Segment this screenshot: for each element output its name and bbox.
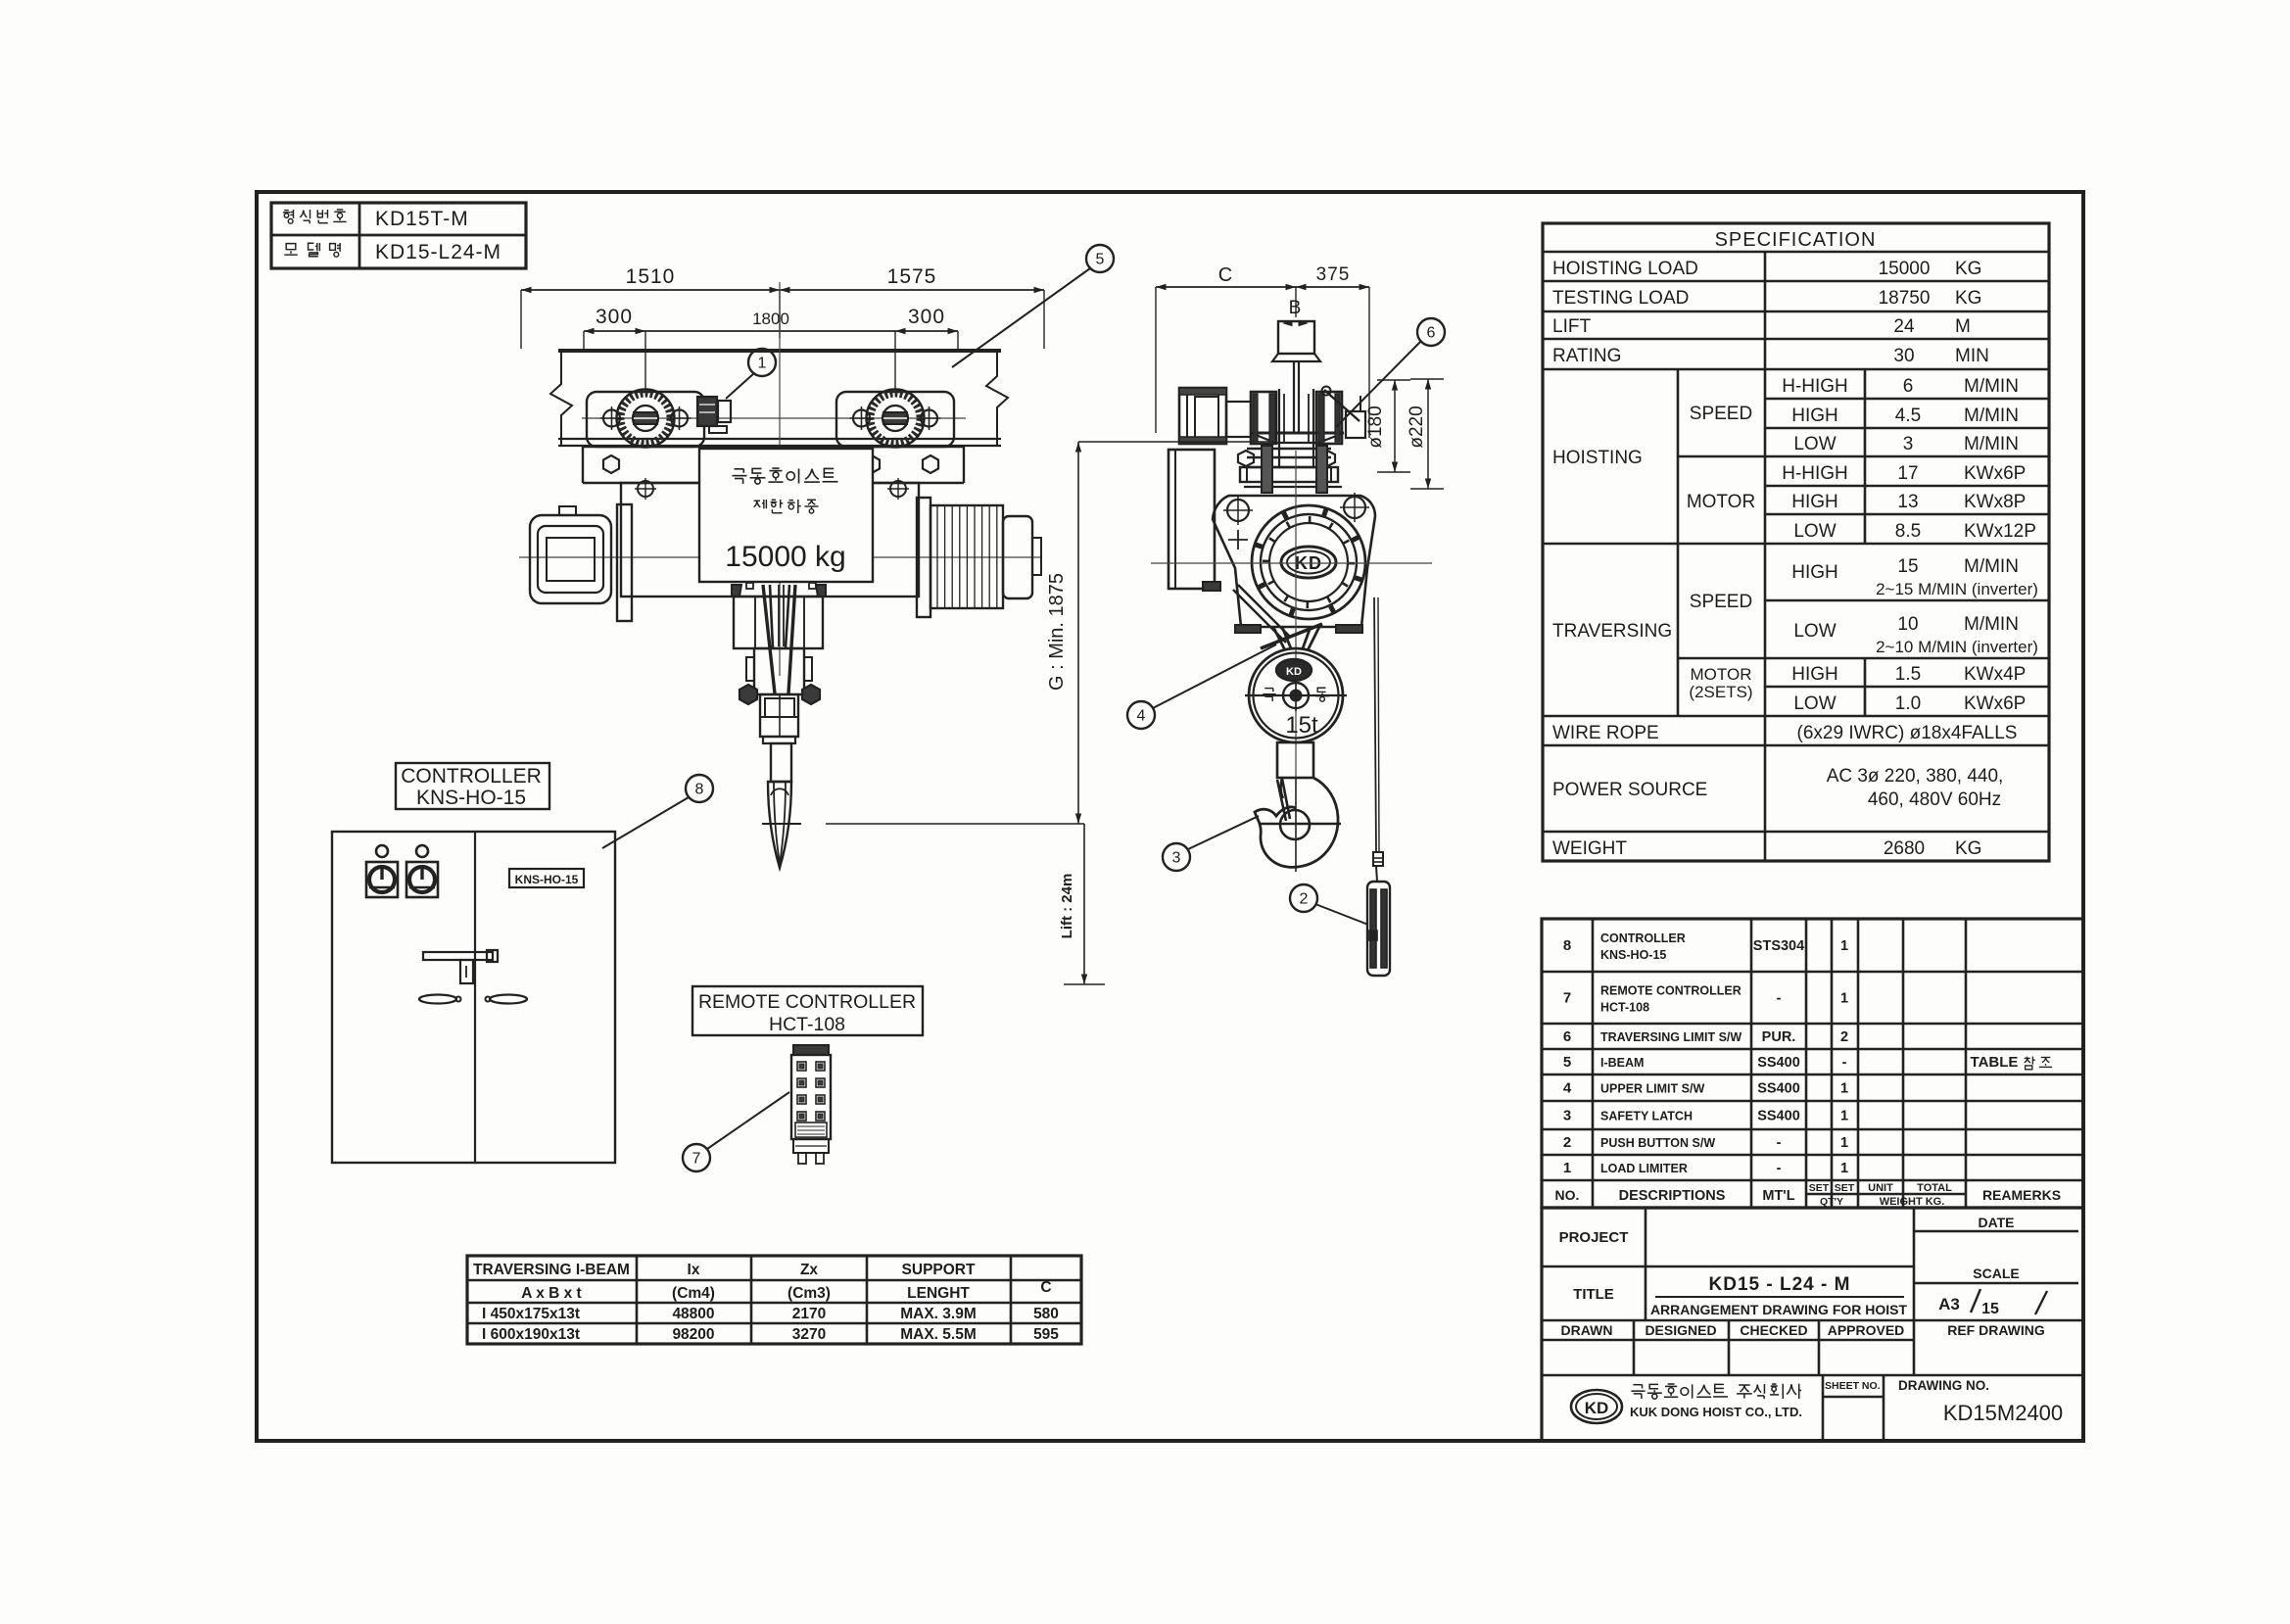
svg-text:TABLE: TABLE: [1971, 1054, 2019, 1071]
svg-text:MT'L: MT'L: [1762, 1188, 1794, 1204]
svg-text:TRAVERSING: TRAVERSING: [1552, 621, 1672, 642]
svg-text:30: 30: [1893, 346, 1914, 366]
svg-text:300: 300: [908, 306, 945, 328]
svg-text:1510: 1510: [626, 265, 676, 288]
svg-text:3: 3: [1563, 1108, 1571, 1124]
svg-text:TRAVERSING I-BEAM: TRAVERSING I-BEAM: [473, 1262, 630, 1278]
svg-text:1: 1: [1840, 1109, 1848, 1124]
svg-text:KWx6P: KWx6P: [1964, 693, 2026, 714]
svg-text:HIGH: HIGH: [1791, 664, 1838, 685]
svg-text:KWx12P: KWx12P: [1964, 521, 2036, 542]
svg-text:KD15T-M: KD15T-M: [375, 208, 469, 230]
svg-text:I 450x175x13t: I 450x175x13t: [482, 1306, 580, 1322]
svg-text:7: 7: [1563, 990, 1571, 1007]
svg-text:SPEED: SPEED: [1690, 404, 1752, 424]
svg-text:LOW: LOW: [1793, 521, 1836, 542]
svg-text:AC 3ø 220, 380, 440,: AC 3ø 220, 380, 440,: [1827, 766, 2004, 787]
svg-text:SUPPORT: SUPPORT: [902, 1262, 976, 1278]
svg-text:PUSH BUTTON S/W: PUSH BUTTON S/W: [1600, 1136, 1715, 1150]
svg-text:A3: A3: [1938, 1295, 1960, 1314]
svg-text:A x B x t: A x B x t: [521, 1285, 581, 1302]
svg-text:1: 1: [1840, 1081, 1848, 1097]
svg-text:APPROVED: APPROVED: [1828, 1322, 1905, 1338]
svg-text:1800: 1800: [752, 310, 789, 328]
svg-text:1: 1: [1840, 938, 1848, 954]
svg-text:M/MIN: M/MIN: [1964, 376, 2019, 397]
svg-text:6: 6: [1563, 1028, 1571, 1045]
svg-text:580: 580: [1033, 1306, 1059, 1322]
svg-text:-: -: [1777, 1135, 1782, 1151]
svg-text:375: 375: [1316, 264, 1351, 285]
svg-text:2~10 M/MIN (inverter): 2~10 M/MIN (inverter): [1876, 638, 2038, 656]
svg-text:4: 4: [1137, 708, 1146, 725]
svg-text:1: 1: [1840, 991, 1848, 1007]
svg-text:REF DRAWING: REF DRAWING: [1947, 1322, 2045, 1338]
svg-text:10: 10: [1897, 614, 1918, 635]
svg-text:6: 6: [1903, 376, 1914, 397]
svg-text:LOW: LOW: [1793, 693, 1836, 714]
svg-text:PUR.: PUR.: [1762, 1029, 1796, 1045]
svg-text:I-BEAM: I-BEAM: [1600, 1056, 1644, 1070]
svg-text:MAX. 5.5M: MAX. 5.5M: [900, 1326, 977, 1343]
svg-text:SET: SET: [1809, 1182, 1830, 1194]
svg-text:WIRE ROPE: WIRE ROPE: [1552, 723, 1659, 743]
svg-text:1.0: 1.0: [1895, 693, 1921, 714]
svg-text:PROJECT: PROJECT: [1559, 1229, 1629, 1246]
svg-text:15t: 15t: [1285, 712, 1318, 739]
svg-text:98200: 98200: [672, 1326, 714, 1343]
svg-text:HOISTING: HOISTING: [1552, 448, 1643, 468]
svg-text:SPECIFICATION: SPECIFICATION: [1715, 229, 1877, 251]
svg-text:Lift : 24m: Lift : 24m: [1059, 874, 1075, 939]
svg-text:SS400: SS400: [1757, 1055, 1800, 1071]
svg-text:MAX. 3.9M: MAX. 3.9M: [900, 1306, 977, 1322]
svg-text:DESIGNED: DESIGNED: [1645, 1322, 1716, 1338]
svg-text:Ix: Ix: [688, 1262, 700, 1278]
svg-text:2680: 2680: [1884, 838, 1925, 859]
svg-text:I 600x190x13t: I 600x190x13t: [482, 1326, 580, 1343]
svg-text:MOTOR: MOTOR: [1691, 665, 1752, 684]
svg-text:SS400: SS400: [1757, 1109, 1800, 1124]
svg-text:KG: KG: [1955, 838, 1981, 859]
svg-text:LENGHT: LENGHT: [907, 1285, 970, 1302]
svg-text:HIGH: HIGH: [1791, 406, 1838, 426]
svg-text:-: -: [1842, 1055, 1847, 1071]
svg-text:KWx4P: KWx4P: [1964, 664, 2026, 685]
svg-text:8: 8: [695, 782, 704, 798]
svg-text:SS400: SS400: [1757, 1081, 1800, 1097]
svg-text:M/MIN: M/MIN: [1964, 614, 2019, 635]
svg-text:WEIGHT: WEIGHT: [1552, 838, 1627, 859]
svg-text:LOW: LOW: [1793, 434, 1836, 454]
svg-text:(2SETS): (2SETS): [1689, 683, 1752, 701]
svg-text:UNIT: UNIT: [1868, 1182, 1893, 1194]
svg-text:M/MIN: M/MIN: [1964, 406, 2019, 426]
svg-text:3: 3: [1172, 850, 1181, 867]
svg-text:2~15 M/MIN (inverter): 2~15 M/MIN (inverter): [1876, 580, 2038, 598]
svg-text:DRAWING NO.: DRAWING NO.: [1898, 1378, 1989, 1393]
svg-text:KNS-HO-15: KNS-HO-15: [1600, 948, 1666, 962]
svg-text:KD15-L24-M: KD15-L24-M: [375, 241, 501, 263]
svg-text:13: 13: [1897, 492, 1918, 512]
svg-text:REMOTE CONTROLLER: REMOTE CONTROLLER: [1600, 984, 1741, 998]
svg-text:H-HIGH: H-HIGH: [1782, 463, 1848, 484]
svg-text:HCT-108: HCT-108: [1600, 1001, 1649, 1015]
svg-text:2170: 2170: [792, 1306, 826, 1322]
svg-text:1: 1: [1563, 1160, 1571, 1176]
svg-text:595: 595: [1033, 1326, 1059, 1343]
svg-text:SAFETY LATCH: SAFETY LATCH: [1600, 1110, 1693, 1123]
svg-text:Zx: Zx: [800, 1262, 818, 1278]
svg-text:KD: KD: [1286, 666, 1302, 678]
svg-text:SET: SET: [1835, 1182, 1855, 1194]
svg-text:8: 8: [1563, 937, 1571, 954]
svg-text:1.5: 1.5: [1895, 664, 1921, 685]
svg-text:15: 15: [1897, 556, 1918, 577]
svg-text:H-HIGH: H-HIGH: [1782, 376, 1848, 397]
svg-text:KNS-HO-15: KNS-HO-15: [416, 787, 526, 809]
svg-text:TITLE: TITLE: [1573, 1286, 1614, 1303]
svg-text:ARRANGEMENT DRAWING FOR HOIST: ARRANGEMENT DRAWING FOR HOIST: [1650, 1302, 1908, 1317]
svg-text:TESTING LOAD: TESTING LOAD: [1552, 288, 1689, 309]
svg-text:TRAVERSING LIMIT S/W: TRAVERSING LIMIT S/W: [1600, 1030, 1741, 1044]
svg-text:ø180: ø180: [1365, 406, 1386, 448]
svg-text:MOTOR: MOTOR: [1687, 492, 1755, 512]
svg-text:-: -: [1777, 1161, 1782, 1176]
svg-text:(Cm3): (Cm3): [787, 1285, 831, 1302]
svg-text:C: C: [1218, 264, 1232, 286]
svg-text:REAMERKS: REAMERKS: [1982, 1187, 2061, 1203]
svg-text:KD15 - L24 - M: KD15 - L24 - M: [1709, 1274, 1851, 1295]
svg-text:HIGH: HIGH: [1791, 492, 1838, 512]
svg-text:CONTROLLER: CONTROLLER: [1600, 931, 1686, 945]
svg-text:460, 480V 60Hz: 460, 480V 60Hz: [1868, 789, 2001, 810]
svg-text:QT'Y: QT'Y: [1820, 1196, 1843, 1208]
svg-text:G : Min. 1875: G : Min. 1875: [1046, 573, 1068, 691]
svg-text:5: 5: [1096, 252, 1105, 268]
svg-text:(Cm4): (Cm4): [672, 1285, 715, 1302]
svg-text:ø220: ø220: [1407, 406, 1427, 448]
svg-text:M: M: [1955, 316, 1971, 337]
svg-text:48800: 48800: [672, 1306, 714, 1322]
svg-text:CHECKED: CHECKED: [1740, 1322, 1807, 1338]
svg-text:SPEED: SPEED: [1690, 592, 1752, 612]
svg-text:POWER SOURCE: POWER SOURCE: [1552, 780, 1707, 800]
svg-text:1: 1: [1840, 1135, 1848, 1151]
svg-text:LIFT: LIFT: [1552, 316, 1591, 337]
svg-text:2: 2: [1563, 1134, 1571, 1151]
svg-text:-: -: [1777, 991, 1782, 1007]
svg-text:UPPER LIMIT S/W: UPPER LIMIT S/W: [1600, 1082, 1704, 1096]
svg-text:KD15M2400: KD15M2400: [1943, 1401, 2063, 1425]
svg-text:KUK DONG HOIST CO., LTD.: KUK DONG HOIST CO., LTD.: [1630, 1405, 1802, 1419]
svg-text:15: 15: [1981, 1301, 1999, 1317]
svg-text:4.5: 4.5: [1895, 406, 1921, 426]
svg-text:1: 1: [1840, 1161, 1848, 1176]
svg-text:MIN: MIN: [1955, 346, 1989, 366]
svg-text:SCALE: SCALE: [1973, 1266, 2019, 1281]
svg-text:KNS-HO-15: KNS-HO-15: [515, 873, 579, 886]
svg-text:SHEET NO.: SHEET NO.: [1825, 1380, 1881, 1392]
svg-text:4: 4: [1563, 1080, 1572, 1097]
svg-text:300: 300: [596, 306, 633, 328]
svg-text:LOW: LOW: [1793, 621, 1836, 642]
svg-text:M/MIN: M/MIN: [1964, 434, 2019, 454]
svg-text:1575: 1575: [887, 265, 937, 288]
svg-text:6: 6: [1427, 325, 1436, 342]
svg-text:B: B: [1289, 298, 1302, 318]
svg-text:STS304: STS304: [1753, 938, 1804, 954]
svg-text:2: 2: [1300, 891, 1309, 908]
svg-text:DRAWN: DRAWN: [1561, 1322, 1613, 1338]
svg-text:DESCRIPTIONS: DESCRIPTIONS: [1619, 1188, 1726, 1204]
svg-text:24: 24: [1893, 316, 1915, 337]
svg-text:HOISTING LOAD: HOISTING LOAD: [1552, 259, 1698, 279]
svg-text:CONTROLLER: CONTROLLER: [401, 765, 542, 788]
svg-text:17: 17: [1897, 463, 1918, 484]
svg-text:HCT-108: HCT-108: [769, 1014, 845, 1035]
svg-text:1: 1: [758, 356, 767, 372]
svg-text:7: 7: [692, 1151, 701, 1168]
svg-text:NO.: NO.: [1555, 1187, 1580, 1203]
svg-text:HIGH: HIGH: [1791, 562, 1838, 583]
svg-text:18750: 18750: [1879, 288, 1931, 309]
svg-text:M/MIN: M/MIN: [1964, 556, 2019, 577]
svg-text:KG: KG: [1955, 288, 1981, 309]
svg-text:RATING: RATING: [1552, 346, 1621, 366]
svg-text:(6x29 IWRC) ø18x4FALLS: (6x29 IWRC) ø18x4FALLS: [1797, 723, 2018, 743]
svg-text:3270: 3270: [792, 1326, 826, 1343]
svg-text:15000 kg: 15000 kg: [725, 541, 845, 573]
svg-text:C: C: [1040, 1279, 1051, 1296]
svg-text:8.5: 8.5: [1895, 521, 1921, 542]
svg-text:KWx8P: KWx8P: [1964, 492, 2026, 512]
svg-text:REMOTE CONTROLLER: REMOTE CONTROLLER: [698, 991, 916, 1013]
svg-text:KD: KD: [1585, 1399, 1609, 1417]
svg-text:2: 2: [1840, 1029, 1848, 1045]
svg-text:LOAD LIMITER: LOAD LIMITER: [1600, 1162, 1688, 1175]
svg-text:15000: 15000: [1879, 259, 1931, 279]
svg-text:5: 5: [1563, 1054, 1571, 1071]
svg-text:DATE: DATE: [1978, 1215, 2014, 1230]
svg-text:3: 3: [1903, 434, 1914, 454]
svg-text:KWx6P: KWx6P: [1964, 463, 2026, 484]
svg-text:KG: KG: [1955, 259, 1981, 279]
svg-text:TOTAL: TOTAL: [1917, 1182, 1952, 1194]
svg-text:WEIGHT KG.: WEIGHT KG.: [1880, 1196, 1945, 1208]
